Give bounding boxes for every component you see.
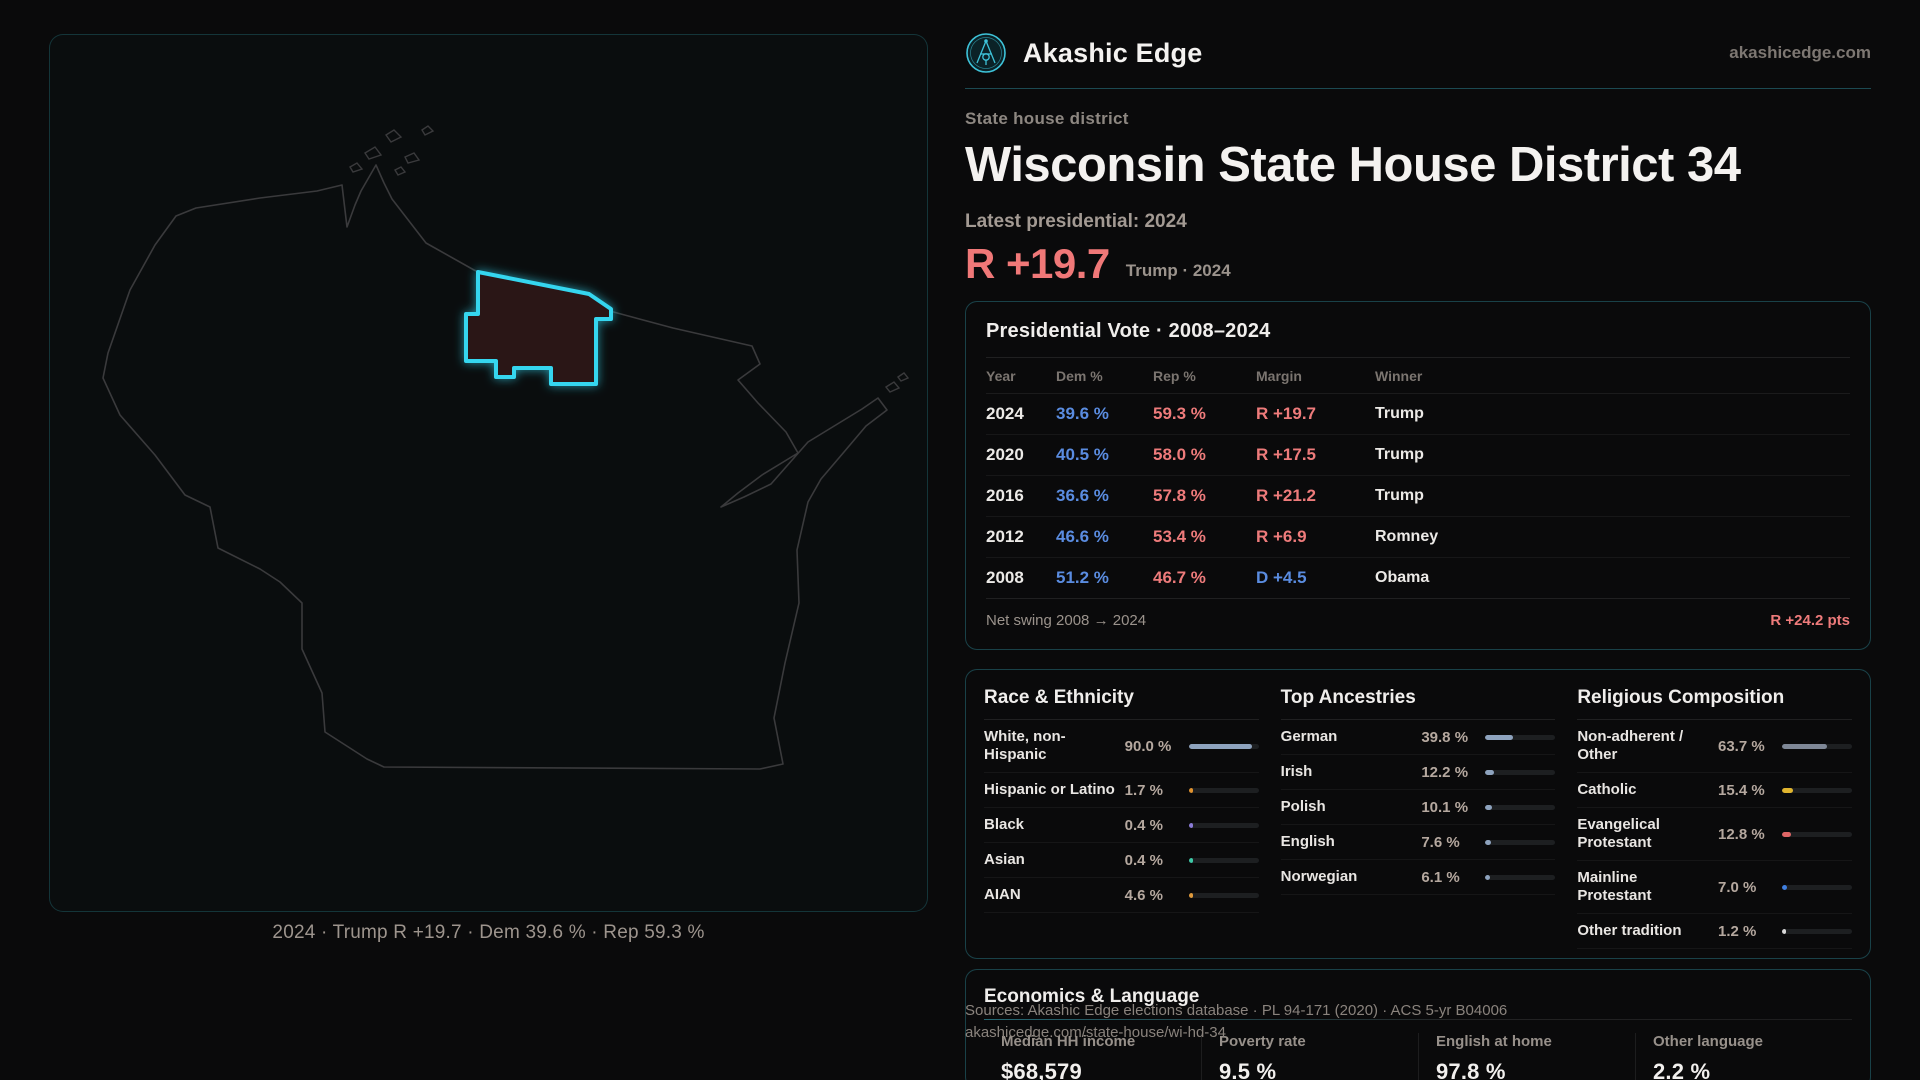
demo-row: German39.8 % xyxy=(1281,720,1556,755)
demo-bar-track xyxy=(1782,885,1852,890)
wisconsin-outline xyxy=(103,165,887,769)
demo-label: AIAN xyxy=(984,886,1117,904)
vote-rep-share: 57.8 % xyxy=(1153,486,1256,506)
demo-bar-fill xyxy=(1485,875,1489,880)
demo-row: AIAN4.6 % xyxy=(984,878,1259,913)
demo-bar-fill xyxy=(1782,744,1827,749)
demo-label: English xyxy=(1281,833,1414,851)
presidential-vote-card: Presidential Vote · 2008–2024 YearDem %R… xyxy=(965,301,1871,650)
demo-bar-fill xyxy=(1782,885,1787,890)
demo-label: Black xyxy=(984,816,1117,834)
vote-winner: Trump xyxy=(1375,446,1850,464)
demo-bar-track xyxy=(1189,823,1259,828)
demo-bar-track xyxy=(1189,788,1259,793)
race-ethnicity-section: Race & Ethnicity White, non-Hispanic90.0… xyxy=(984,687,1259,949)
vote-rep-share: 58.0 % xyxy=(1153,445,1256,465)
demo-label: Hispanic or Latino xyxy=(984,781,1117,799)
demo-row: White, non-Hispanic90.0 % xyxy=(984,720,1259,773)
vote-dem-share: 39.6 % xyxy=(1056,404,1153,424)
door-islands xyxy=(886,373,908,392)
vote-column-header: Year xyxy=(986,368,1056,384)
demo-row: Non-adherent / Other63.7 % xyxy=(1577,720,1852,773)
economics-stat-value: 2.2 % xyxy=(1653,1059,1852,1080)
apostle-islands xyxy=(350,126,433,175)
vote-table-rows: 202439.6 %59.3 %R +19.7Trump202040.5 %58… xyxy=(986,394,1850,599)
demo-label: Asian xyxy=(984,851,1117,869)
vote-year: 2008 xyxy=(986,568,1056,588)
vote-winner: Trump xyxy=(1375,487,1850,505)
demo-value: 10.1 % xyxy=(1421,799,1477,816)
demo-row: Catholic15.4 % xyxy=(1577,773,1852,808)
brand-domain-link[interactable]: akashicedge.com xyxy=(1729,43,1871,63)
demo-value: 1.2 % xyxy=(1718,923,1774,940)
demo-bar-track xyxy=(1485,805,1555,810)
demo-value: 6.1 % xyxy=(1421,869,1477,886)
demo-row: Black0.4 % xyxy=(984,808,1259,843)
vote-winner: Trump xyxy=(1375,405,1850,423)
vote-margin: R +17.5 xyxy=(1256,445,1375,465)
demo-row: Mainline Protestant7.0 % xyxy=(1577,861,1852,914)
demo-value: 12.2 % xyxy=(1421,764,1477,781)
demo-label: Catholic xyxy=(1577,781,1710,799)
vote-year: 2012 xyxy=(986,527,1056,547)
demo-bar-fill xyxy=(1782,929,1786,934)
demo-bar-fill xyxy=(1782,832,1791,837)
race-ethnicity-title: Race & Ethnicity xyxy=(984,687,1259,720)
wisconsin-map xyxy=(50,35,928,912)
demo-row: Other tradition1.2 % xyxy=(1577,914,1852,949)
demo-bar-fill xyxy=(1189,788,1193,793)
vote-rep-share: 53.4 % xyxy=(1153,527,1256,547)
page-title: Wisconsin State House District 34 xyxy=(965,137,1871,193)
demo-value: 39.8 % xyxy=(1421,729,1477,746)
source-line: Sources: Akashic Edge elections database… xyxy=(965,1000,1871,1022)
demo-value: 63.7 % xyxy=(1718,738,1774,755)
net-swing-label: Net swing 2008 → 2024 xyxy=(986,612,1146,629)
demo-value: 90.0 % xyxy=(1125,738,1181,755)
vote-table-title: Presidential Vote · 2008–2024 xyxy=(986,320,1850,358)
demo-value: 1.7 % xyxy=(1125,782,1181,799)
vote-dem-share: 51.2 % xyxy=(1056,568,1153,588)
top-ancestries-title: Top Ancestries xyxy=(1281,687,1556,720)
source-permalink[interactable]: akashicedge.com/state-house/wi-hd-34 xyxy=(965,1022,1871,1044)
demo-value: 12.8 % xyxy=(1718,826,1774,843)
economics-stat-value: $68,579 xyxy=(1001,1059,1201,1080)
economics-stat-value: 97.8 % xyxy=(1436,1059,1635,1080)
vote-dem-share: 40.5 % xyxy=(1056,445,1153,465)
brand-header: Akashic Edge akashicedge.com xyxy=(965,30,1871,76)
vote-column-header: Rep % xyxy=(1153,368,1256,384)
vote-table-header: YearDem %Rep %MarginWinner xyxy=(986,358,1850,394)
vote-rep-share: 59.3 % xyxy=(1153,404,1256,424)
demo-row: Hispanic or Latino1.7 % xyxy=(984,773,1259,808)
report-column: Akashic Edge akashicedge.com State house… xyxy=(965,30,1871,1080)
vote-margin: R +21.2 xyxy=(1256,486,1375,506)
map-caption: 2024 · Trump R +19.7 · Dem 39.6 % · Rep … xyxy=(49,922,928,944)
vote-year: 2024 xyxy=(986,404,1056,424)
vote-dem-share: 46.6 % xyxy=(1056,527,1153,547)
demo-bar-track xyxy=(1189,893,1259,898)
demo-label: White, non-Hispanic xyxy=(984,728,1117,764)
demo-row: Asian0.4 % xyxy=(984,843,1259,878)
headline-margin-context: Trump · 2024 xyxy=(1126,261,1231,285)
headline-margin-value: R +19.7 xyxy=(965,243,1110,285)
vote-table-row: 202040.5 %58.0 %R +17.5Trump xyxy=(986,435,1850,476)
vote-rep-share: 46.7 % xyxy=(1153,568,1256,588)
vote-table-row: 202439.6 %59.3 %R +19.7Trump xyxy=(986,394,1850,435)
demo-bar-track xyxy=(1485,840,1555,845)
demo-bar-fill xyxy=(1485,735,1513,740)
vote-table-row: 201636.6 %57.8 %R +21.2Trump xyxy=(986,476,1850,517)
vote-year: 2016 xyxy=(986,486,1056,506)
religious-composition-title: Religious Composition xyxy=(1577,687,1852,720)
header-divider xyxy=(965,88,1871,89)
compass-emblem-icon[interactable] xyxy=(965,32,1007,74)
demo-label: Non-adherent / Other xyxy=(1577,728,1710,764)
latest-presidential-label: Latest presidential: 2024 xyxy=(965,211,1871,233)
demo-bar-track xyxy=(1485,735,1555,740)
demo-bar-track xyxy=(1189,744,1259,749)
vote-dem-share: 36.6 % xyxy=(1056,486,1153,506)
vote-winner: Obama xyxy=(1375,569,1850,587)
demo-label: Evangelical Protestant xyxy=(1577,816,1710,852)
state-map-panel xyxy=(49,34,928,912)
vote-margin: R +6.9 xyxy=(1256,527,1375,547)
district-34-shape[interactable] xyxy=(466,272,611,384)
vote-table-row: 201246.6 %53.4 %R +6.9Romney xyxy=(986,517,1850,558)
demo-label: Norwegian xyxy=(1281,868,1414,886)
demo-value: 0.4 % xyxy=(1125,852,1181,869)
vote-column-header: Dem % xyxy=(1056,368,1153,384)
demo-label: Polish xyxy=(1281,798,1414,816)
vote-margin: R +19.7 xyxy=(1256,404,1375,424)
vote-column-header: Winner xyxy=(1375,368,1850,384)
demo-label: Irish xyxy=(1281,763,1414,781)
vote-margin: D +4.5 xyxy=(1256,568,1375,588)
net-swing-value: R +24.2 pts xyxy=(1770,612,1850,629)
vote-column-header: Margin xyxy=(1256,368,1375,384)
vote-table-row: 200851.2 %46.7 %D +4.5Obama xyxy=(986,558,1850,599)
source-footer: Sources: Akashic Edge elections database… xyxy=(965,1000,1871,1044)
demo-bar-track xyxy=(1782,788,1852,793)
top-ancestries-section: Top Ancestries German39.8 %Irish12.2 %Po… xyxy=(1281,687,1556,949)
demo-bar-track xyxy=(1485,875,1555,880)
economics-stat-value: 9.5 % xyxy=(1219,1059,1418,1080)
brand-name: Akashic Edge xyxy=(1023,38,1202,69)
demo-row: Evangelical Protestant12.8 % xyxy=(1577,808,1852,861)
demo-row: English7.6 % xyxy=(1281,825,1556,860)
demo-value: 4.6 % xyxy=(1125,887,1181,904)
demo-value: 7.6 % xyxy=(1421,834,1477,851)
kicker-label: State house district xyxy=(965,109,1871,129)
demographics-card: Race & Ethnicity White, non-Hispanic90.0… xyxy=(965,669,1871,959)
demo-bar-track xyxy=(1485,770,1555,775)
demo-label: Mainline Protestant xyxy=(1577,869,1710,905)
demo-value: 7.0 % xyxy=(1718,879,1774,896)
demo-bar-fill xyxy=(1485,840,1490,845)
demo-bar-track xyxy=(1782,832,1852,837)
demo-bar-fill xyxy=(1189,744,1252,749)
demo-label: Other tradition xyxy=(1577,922,1710,940)
demo-bar-fill xyxy=(1782,788,1793,793)
demo-value: 15.4 % xyxy=(1718,782,1774,799)
demo-bar-fill xyxy=(1485,770,1494,775)
demo-bar-fill xyxy=(1189,858,1193,863)
demo-bar-track xyxy=(1782,929,1852,934)
demo-bar-fill xyxy=(1189,893,1193,898)
demo-value: 0.4 % xyxy=(1125,817,1181,834)
demo-label: German xyxy=(1281,728,1414,746)
vote-winner: Romney xyxy=(1375,528,1850,546)
headline-margin-row: R +19.7 Trump · 2024 xyxy=(965,243,1871,285)
demo-bar-fill xyxy=(1485,805,1492,810)
demo-row: Norwegian6.1 % xyxy=(1281,860,1556,895)
vote-year: 2020 xyxy=(986,445,1056,465)
demo-bar-track xyxy=(1189,858,1259,863)
demo-bar-track xyxy=(1782,744,1852,749)
demo-bar-fill xyxy=(1189,823,1193,828)
net-swing-row: Net swing 2008 → 2024 R +24.2 pts xyxy=(986,599,1850,637)
demo-row: Polish10.1 % xyxy=(1281,790,1556,825)
demo-row: Irish12.2 % xyxy=(1281,755,1556,790)
religious-composition-section: Religious Composition Non-adherent / Oth… xyxy=(1577,687,1852,949)
